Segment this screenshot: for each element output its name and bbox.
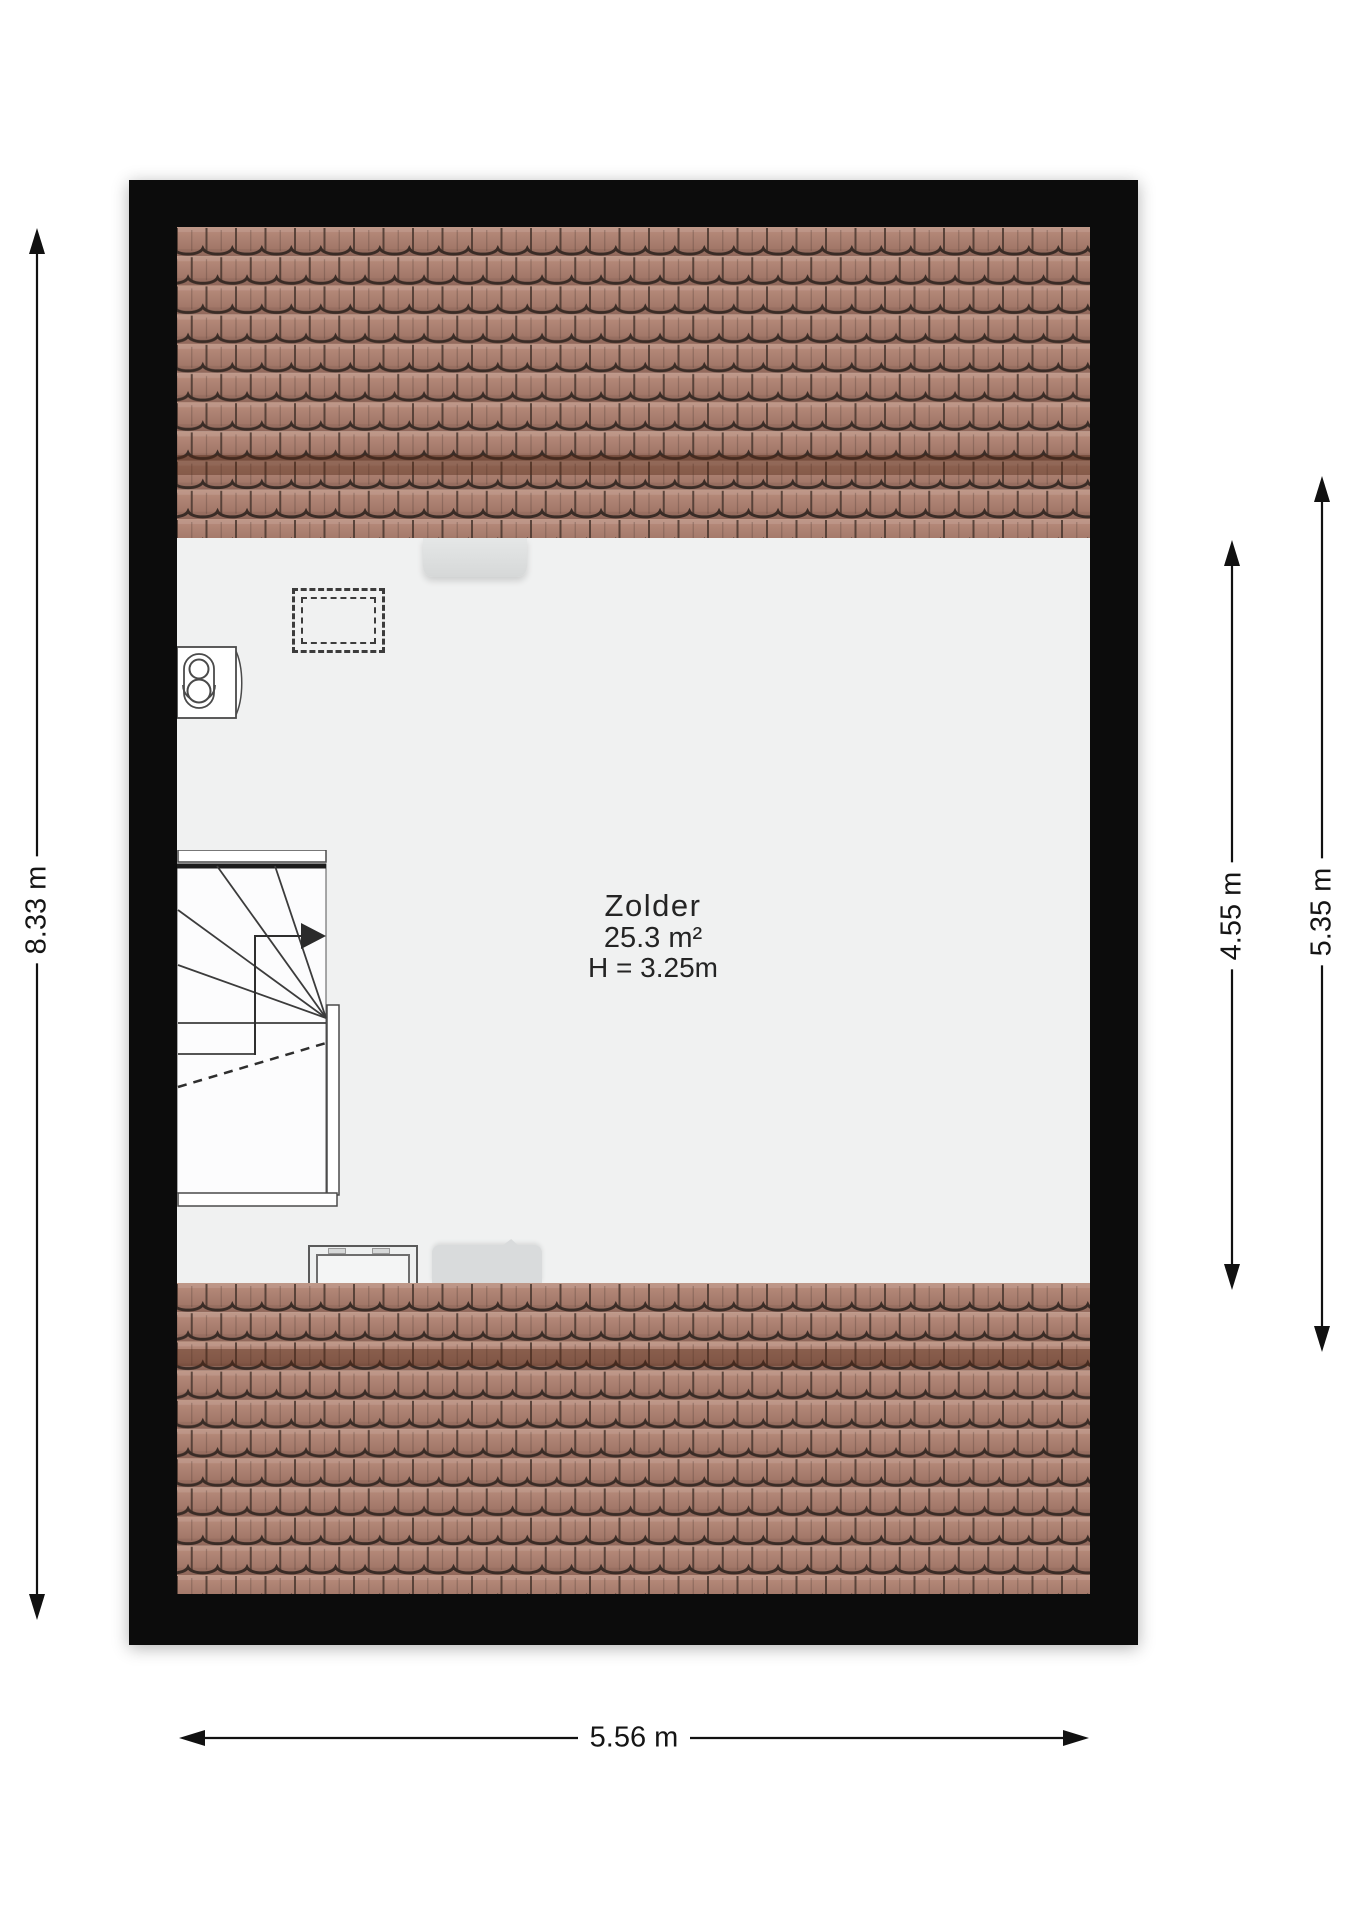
dimension-arrowhead-icon xyxy=(179,1730,205,1746)
dimension-arrows xyxy=(0,0,1358,1920)
dimension-label-right-outer: 5.35 m xyxy=(1304,859,1341,966)
dimension-label-right-inner: 4.55 m xyxy=(1214,863,1251,970)
dimension-arrowhead-icon xyxy=(29,228,45,254)
dimension-arrowhead-icon xyxy=(1224,540,1240,566)
dimension-label-bottom: 5.56 m xyxy=(581,1720,688,1757)
dimension-label-left: 8.33 m xyxy=(19,857,56,964)
dimension-arrowhead-icon xyxy=(1063,1730,1089,1746)
dimension-arrowhead-icon xyxy=(1224,1264,1240,1290)
floorplan-page: Zolder 25.3 m² H = 3.25m xyxy=(0,0,1358,1920)
dimension-arrowhead-icon xyxy=(1314,1326,1330,1352)
dimension-arrowhead-icon xyxy=(1314,476,1330,502)
dimension-arrowhead-icon xyxy=(29,1594,45,1620)
